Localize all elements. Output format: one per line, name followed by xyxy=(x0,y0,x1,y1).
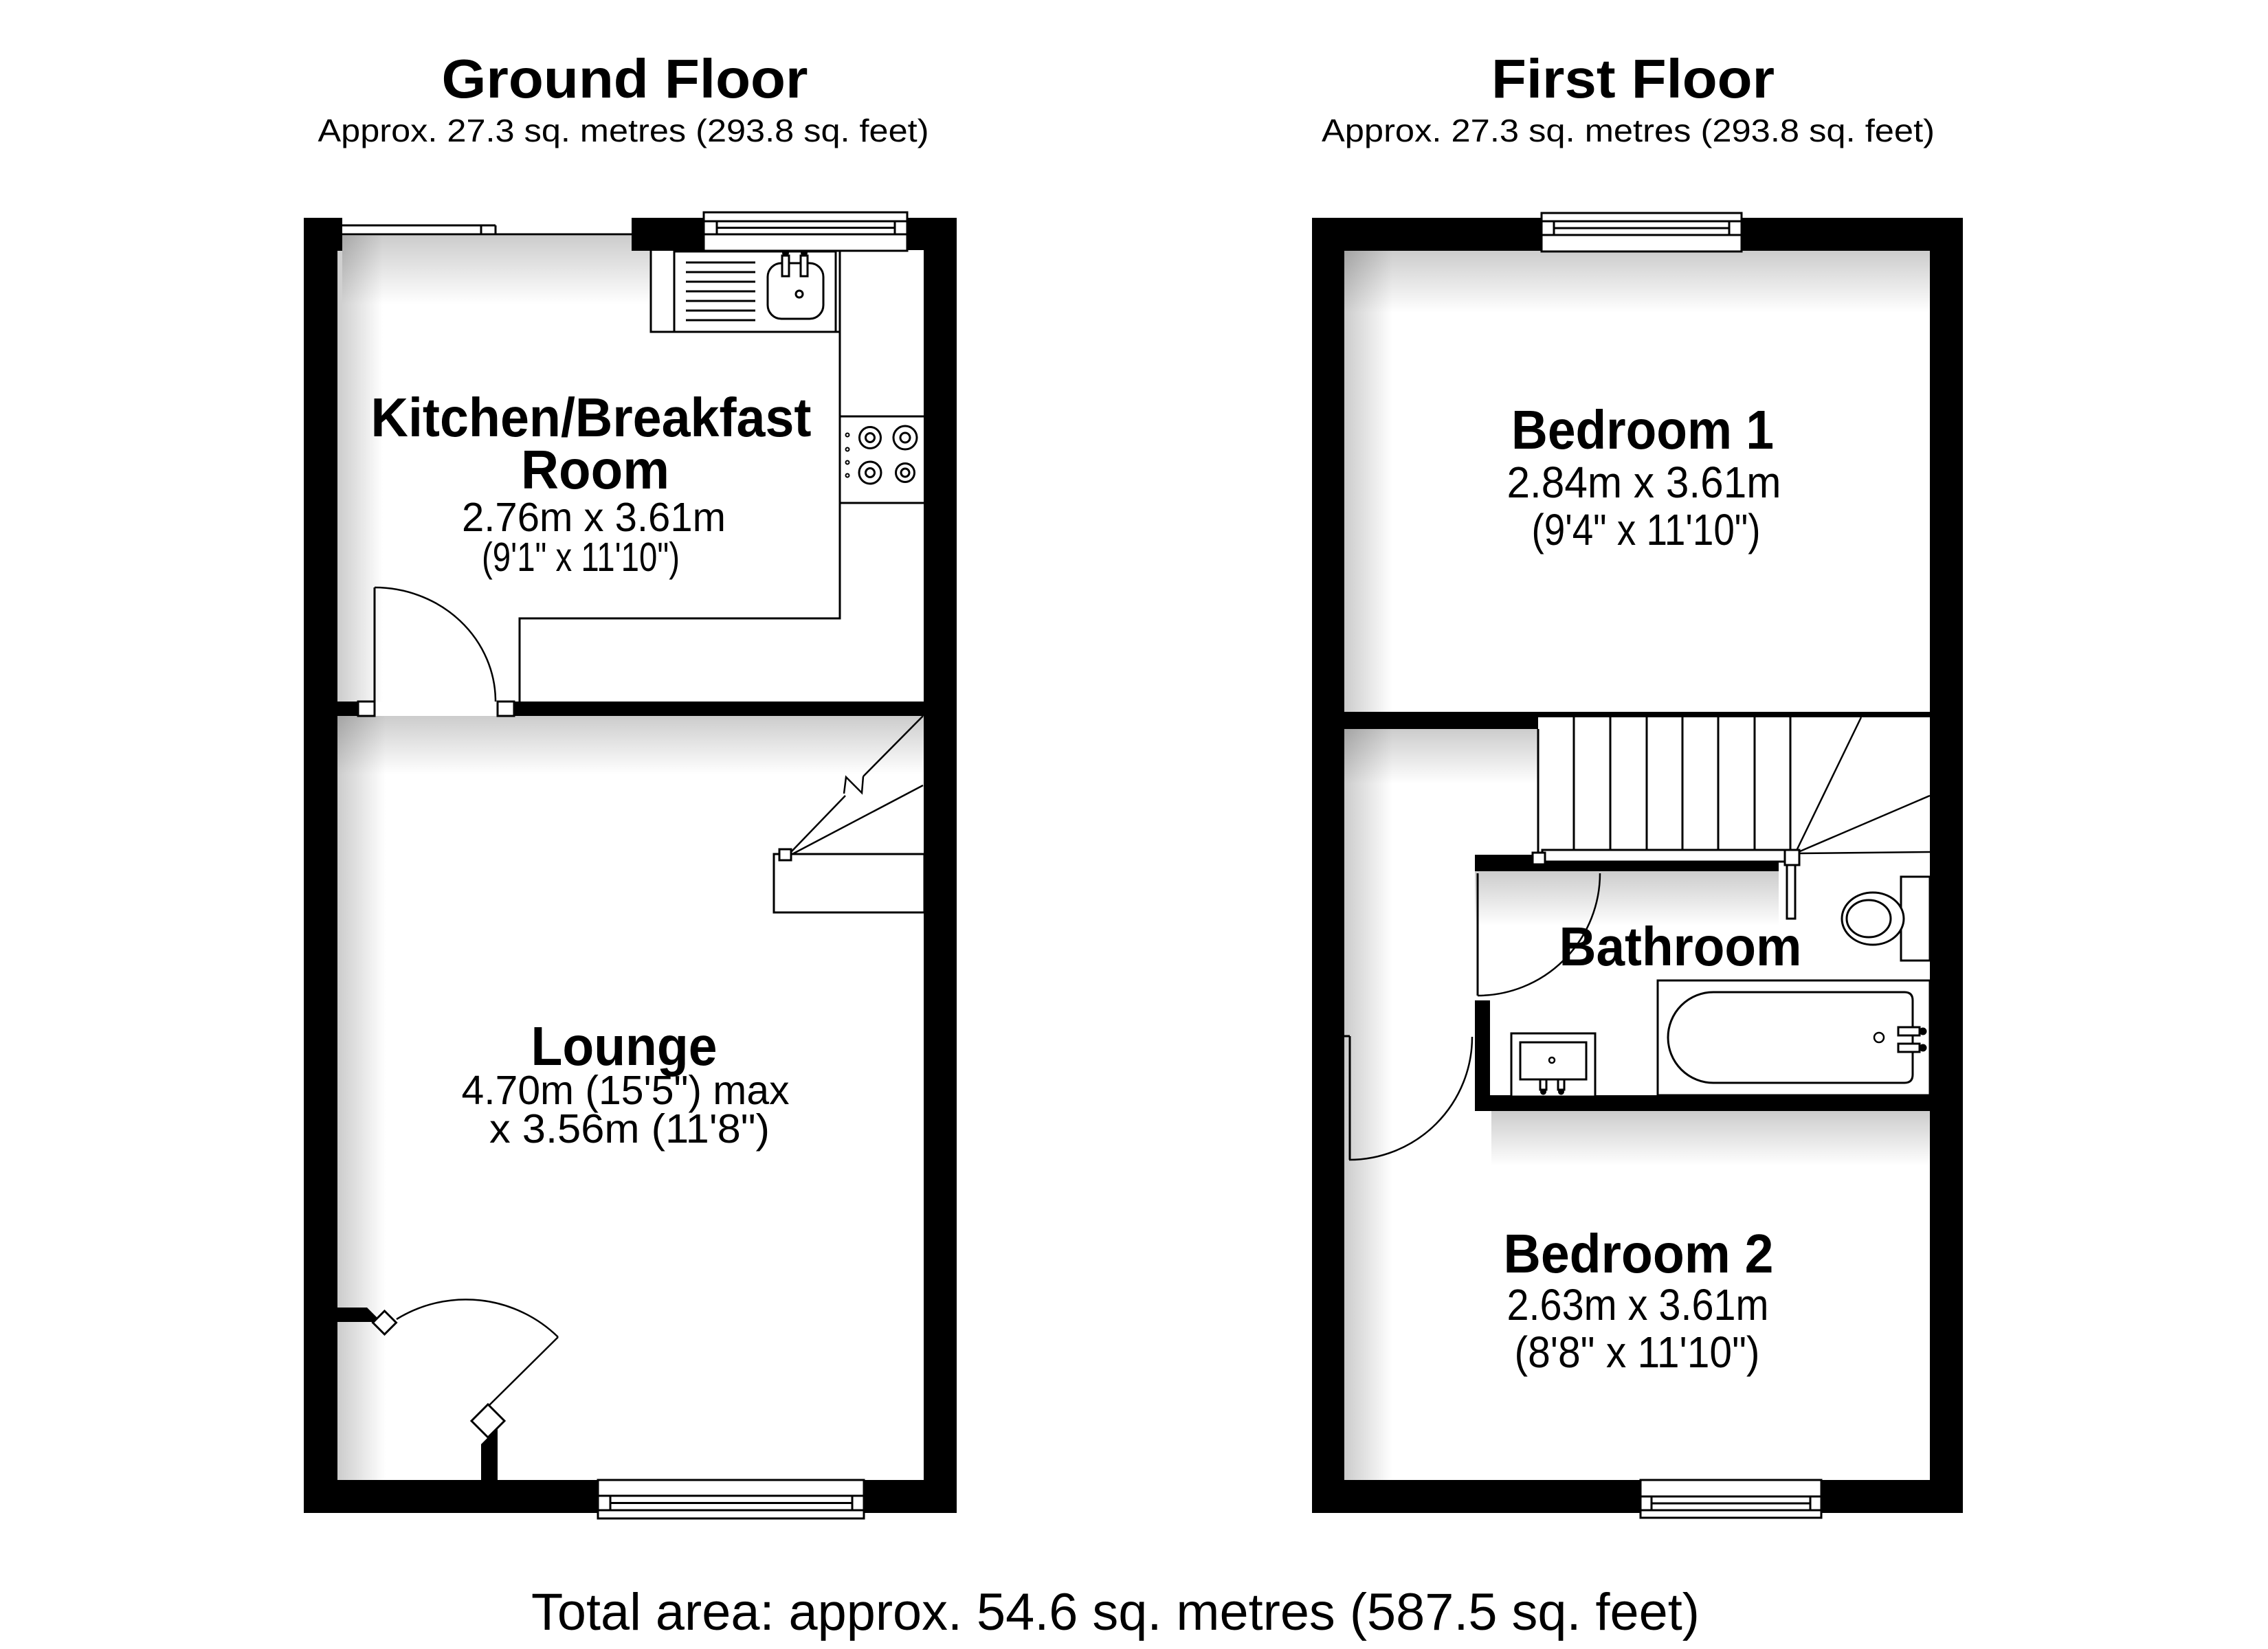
svg-text:(8'8" x 11'10"): (8'8" x 11'10") xyxy=(1515,1327,1760,1377)
svg-text:Bathroom: Bathroom xyxy=(1559,916,1802,977)
svg-text:(9'4" x 11'10"): (9'4" x 11'10") xyxy=(1532,505,1761,554)
svg-text:First Floor: First Floor xyxy=(1491,48,1775,109)
svg-text:2.84m x 3.61m: 2.84m x 3.61m xyxy=(1507,458,1781,507)
svg-text:Total area: approx. 54.6 sq. m: Total area: approx. 54.6 sq. metres (587… xyxy=(531,1583,1700,1641)
svg-text:Approx. 27.3 sq. metres (293.8: Approx. 27.3 sq. metres (293.8 sq. feet) xyxy=(1322,113,1935,148)
svg-text:(9'1" x 11'10"): (9'1" x 11'10") xyxy=(482,535,680,580)
svg-text:Room: Room xyxy=(521,439,669,500)
svg-text:Bedroom 2: Bedroom 2 xyxy=(1504,1223,1774,1284)
svg-text:Bedroom 1: Bedroom 1 xyxy=(1511,399,1774,460)
svg-text:Approx. 27.3 sq. metres (293.8: Approx. 27.3 sq. metres (293.8 sq. feet) xyxy=(318,113,929,148)
svg-text:2.76m x 3.61m: 2.76m x 3.61m xyxy=(462,495,726,540)
svg-text:x 3.56m (11'8"): x 3.56m (11'8") xyxy=(489,1106,770,1152)
svg-text:2.63m x 3.61m: 2.63m x 3.61m xyxy=(1507,1280,1769,1330)
svg-text:Ground Floor: Ground Floor xyxy=(442,48,808,109)
